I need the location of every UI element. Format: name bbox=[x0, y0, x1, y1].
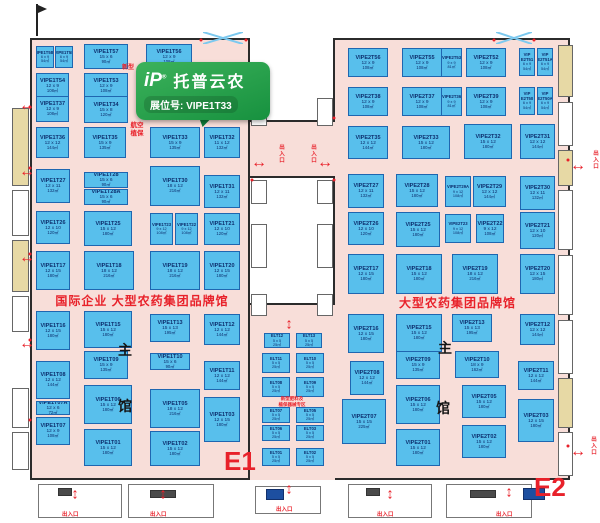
booth-VIPE2T53[interactable]: VIPE2T539 x 981㎡ bbox=[441, 48, 462, 77]
booth-VIPE2T08[interactable]: VIPE2T0812 x 12144㎡ bbox=[350, 361, 384, 395]
booth-VIPE1T19[interactable]: VIPE1T1918 x 12216㎡ bbox=[150, 251, 200, 290]
booth-area: 135㎡ bbox=[99, 146, 110, 151]
wall-marker-dot bbox=[245, 39, 248, 42]
booth-area: 90㎡ bbox=[102, 183, 111, 188]
facility-fixture bbox=[317, 180, 333, 204]
booth-area: 25㎡ bbox=[306, 365, 314, 369]
wall-marker-dot bbox=[29, 106, 32, 109]
main-hall-char: 馆 bbox=[118, 396, 132, 416]
booth-VIPE1T32[interactable]: VIPE1T3211 x 12132㎡ bbox=[204, 127, 240, 158]
booth-ELT12[interactable]: ELT125 x 525㎡ bbox=[264, 333, 290, 348]
booth-area: 54㎡ bbox=[523, 106, 531, 110]
booth-area: 120㎡ bbox=[216, 232, 227, 237]
booth-area: 180㎡ bbox=[102, 333, 113, 338]
booth-VIPE2T29A[interactable]: VIPE2T29A9 x 12108㎡ bbox=[445, 176, 471, 207]
booth-area: 180㎡ bbox=[216, 274, 227, 279]
booth-VIPE1T07[interactable]: VIPE1T0712 x 9108㎡ bbox=[36, 417, 70, 445]
booth-VIPE1T28A[interactable]: VIPE1T28A15 x 690㎡ bbox=[84, 189, 128, 205]
booth-area: 180㎡ bbox=[411, 194, 422, 199]
flag-icon bbox=[38, 5, 47, 13]
booth-area: 108㎡ bbox=[453, 194, 463, 198]
booth-area: 195㎡ bbox=[164, 331, 175, 336]
facility-fixture bbox=[558, 45, 573, 97]
booth-area: 180㎡ bbox=[532, 277, 543, 282]
booth-area: 120㎡ bbox=[532, 234, 543, 239]
facility-fixture bbox=[317, 98, 333, 126]
booth-ELT09[interactable]: ELT095 x 525㎡ bbox=[296, 377, 324, 397]
booth-VIPE1T30[interactable]: VIPE1T3018 x 12216㎡ bbox=[150, 166, 200, 206]
facility-fixture bbox=[366, 488, 380, 496]
booth-ELT02[interactable]: ELT025 x 525㎡ bbox=[296, 448, 324, 466]
booth-VIPE2T51[interactable]: VIP E2T516 x 954㎡ bbox=[519, 48, 535, 76]
booth-area: 25㎡ bbox=[306, 417, 314, 421]
booth-area: 144㎡ bbox=[47, 383, 58, 388]
entrance-arrow-icon: ↔ bbox=[317, 155, 333, 171]
booth-VIPE2T20[interactable]: VIPE2T2012 x 15180㎡ bbox=[520, 254, 555, 294]
booth-ELT13[interactable]: ELT135 x 525㎡ bbox=[296, 333, 322, 348]
booth-area: 108㎡ bbox=[416, 66, 427, 71]
booth-area: 120㎡ bbox=[47, 231, 58, 236]
booth-area: 180㎡ bbox=[102, 451, 113, 456]
booth-area: 90㎡ bbox=[166, 365, 175, 370]
booth-VIPE1T36[interactable]: VIPE1T3612 x 12144㎡ bbox=[36, 127, 69, 158]
booth-area: 90㎡ bbox=[102, 60, 111, 65]
booth-ELT05[interactable]: ELT055 x 525㎡ bbox=[296, 407, 324, 423]
wall-marker-dot bbox=[29, 339, 32, 342]
booth-VIPE2T21[interactable]: VIPE2T2112 x 10120㎡ bbox=[520, 212, 555, 249]
booth-area: 180㎡ bbox=[169, 452, 180, 457]
booth-area: 180㎡ bbox=[478, 445, 489, 450]
booth-area: 25㎡ bbox=[273, 343, 281, 347]
booth-ELT07[interactable]: ELT075 x 525㎡ bbox=[262, 407, 290, 423]
booth-area: 144㎡ bbox=[532, 145, 543, 150]
booth-area: 108㎡ bbox=[362, 66, 373, 71]
wall-marker-dot bbox=[567, 159, 570, 162]
facility-fixture bbox=[266, 489, 284, 500]
booth-area: 54㎡ bbox=[523, 67, 531, 71]
booth-VIPE2T56[interactable]: VIPE2T5612 x 9108㎡ bbox=[348, 48, 388, 77]
e2-section-title: 大型农药集团品牌馆 bbox=[350, 294, 565, 311]
booth-VIPE2T26[interactable]: VIPE2T2612 x 10120㎡ bbox=[348, 212, 384, 245]
exit-label: 出入口 bbox=[150, 510, 167, 518]
entrance-arrow-icon: ↔ bbox=[19, 250, 35, 266]
booth-VIPE2T29[interactable]: VIPE2T2912 x 12144㎡ bbox=[473, 176, 506, 207]
booth-area: 216㎡ bbox=[103, 274, 114, 279]
booth-area: 54㎡ bbox=[60, 59, 68, 63]
exit-label: 出入口 bbox=[589, 436, 597, 456]
booth-area: 25㎡ bbox=[305, 343, 313, 347]
booth-area: 180㎡ bbox=[478, 405, 489, 410]
booth-area: 180㎡ bbox=[420, 146, 431, 151]
booth-VIPE1T34[interactable]: VIPE1T3415 x 8120㎡ bbox=[84, 96, 128, 123]
wall-marker-dot bbox=[533, 39, 536, 42]
booth-VIPE2T15[interactable]: VIPE2T1515 x 12180㎡ bbox=[396, 314, 442, 352]
booth-area: 216㎡ bbox=[169, 274, 180, 279]
booth-area: 72㎡ bbox=[49, 411, 58, 415]
booth-area: 180㎡ bbox=[530, 424, 541, 429]
booth-area: 132㎡ bbox=[360, 194, 371, 199]
booth-VIPE2T19[interactable]: VIPE2T1918 x 12216㎡ bbox=[452, 254, 498, 294]
booth-number-label: 展位号: VIPE1T33 bbox=[144, 96, 238, 113]
booth-VIPE2T38[interactable]: VIPE2T3812 x 9108㎡ bbox=[348, 87, 388, 116]
corridor-zone-label: 新型肥料及 植保器械专区 bbox=[256, 396, 328, 407]
facility-fixture bbox=[558, 102, 573, 146]
booth-VIPE2T03[interactable]: VIPE2T0312 x 15180㎡ bbox=[518, 399, 554, 442]
booth-area: 144㎡ bbox=[216, 379, 227, 384]
booth-VIPE2T12[interactable]: VIPE2T1212 x 12144㎡ bbox=[520, 314, 555, 345]
booth-area: 132㎡ bbox=[216, 195, 227, 200]
exit-label: 出入口 bbox=[309, 144, 317, 164]
booth-name: VIP E2T50 bbox=[520, 92, 534, 101]
booth-area: 180㎡ bbox=[412, 451, 423, 456]
booth-area: 108㎡ bbox=[453, 231, 463, 235]
entrance-arrow-icon: ↕ bbox=[71, 487, 79, 502]
booth-area: 216㎡ bbox=[169, 412, 180, 417]
booth-area: 180㎡ bbox=[102, 408, 113, 413]
door-cross-icon bbox=[496, 32, 532, 44]
entrance-arrow-icon: ↔ bbox=[570, 158, 586, 174]
facility-fixture bbox=[12, 240, 29, 292]
booth-area: 25㎡ bbox=[306, 459, 314, 463]
booth-area: 144㎡ bbox=[530, 379, 541, 384]
booth-VIPE1T27[interactable]: VIPE1T2712 x 11132㎡ bbox=[36, 169, 70, 203]
booth-area: 135㎡ bbox=[412, 368, 423, 373]
booth-area: 180㎡ bbox=[413, 277, 424, 282]
booth-VIPE2T18[interactable]: VIPE2T1815 x 12180㎡ bbox=[396, 254, 442, 294]
booth-area: 108㎡ bbox=[181, 231, 191, 235]
booth-VIPE2T39[interactable]: VIPE2T3912 x 9108㎡ bbox=[466, 87, 506, 116]
booth-area: 216㎡ bbox=[169, 189, 180, 194]
booth-area: 25㎡ bbox=[306, 389, 314, 393]
booth-VIPE1T22[interactable]: VIPE1T229 x 12108㎡ bbox=[175, 213, 198, 245]
booth-VIPE1T16[interactable]: VIPE1T1612 x 15180㎡ bbox=[36, 311, 70, 350]
facility-fixture bbox=[317, 294, 333, 316]
booth-area: 216㎡ bbox=[469, 277, 480, 282]
booth-ELT11[interactable]: ELT115 x 525㎡ bbox=[262, 353, 290, 373]
booth-area: 81㎡ bbox=[447, 104, 455, 108]
booth-area: 108㎡ bbox=[47, 112, 58, 117]
booth-VIPE2T55[interactable]: VIPE2T5512 x 9108㎡ bbox=[402, 48, 442, 77]
booth-area: 135㎡ bbox=[169, 146, 180, 151]
facility-fixture bbox=[12, 190, 29, 236]
booth-ELT06[interactable]: ELT065 x 525㎡ bbox=[262, 425, 290, 441]
facility-fixture bbox=[558, 320, 573, 374]
booth-area: 180㎡ bbox=[360, 277, 371, 282]
facility-fixture bbox=[558, 190, 573, 250]
booth-area: 25㎡ bbox=[272, 365, 280, 369]
booth-area: 108㎡ bbox=[416, 105, 427, 110]
booth-area: 180㎡ bbox=[102, 232, 113, 237]
booth-area: 108㎡ bbox=[156, 231, 166, 235]
booth-ELT10[interactable]: ELT105 x 525㎡ bbox=[296, 353, 324, 373]
booth-area: 108㎡ bbox=[47, 89, 58, 94]
topu-logo-icon: iP® bbox=[144, 71, 166, 90]
booth-VIPE2T10[interactable]: VIPE2T1018 x 9162㎡ bbox=[455, 351, 499, 378]
main-hall-char: 馆 bbox=[436, 398, 450, 418]
wall-marker-dot bbox=[29, 167, 32, 170]
outbuilding bbox=[38, 484, 122, 518]
booth-VIPE2T09[interactable]: VIPE2T0915 x 9135㎡ bbox=[396, 351, 440, 379]
booth-VIPE2T32[interactable]: VIPE2T3215 x 12180㎡ bbox=[464, 124, 512, 159]
booth-VIPE2T17[interactable]: VIPE2T1712 x 15180㎡ bbox=[348, 254, 384, 294]
door-cross-icon bbox=[203, 32, 243, 44]
booth-area: 180㎡ bbox=[412, 233, 423, 238]
booth-VIPE1T02[interactable]: VIPE1T0215 x 12180㎡ bbox=[150, 431, 200, 466]
booth-VIPE2T16[interactable]: VIPE2T1612 x 15180㎡ bbox=[348, 314, 384, 353]
booth-area: 135㎡ bbox=[100, 368, 111, 373]
entrance-arrow-icon: ↕ bbox=[285, 482, 293, 497]
booth-VIPE1T17[interactable]: VIPE1T1712 x 15180㎡ bbox=[36, 251, 70, 290]
booth-area: 144㎡ bbox=[362, 146, 373, 151]
exit-label: 出入口 bbox=[62, 510, 79, 518]
booth-VIPE1T11[interactable]: VIPE1T1112 x 12144㎡ bbox=[204, 361, 240, 390]
main-hall-char: 主 bbox=[438, 338, 452, 358]
facility-fixture bbox=[12, 432, 29, 470]
booth-VIPE2T36[interactable]: VIPE2T369 x 981㎡ bbox=[441, 87, 462, 116]
wall-marker-dot bbox=[493, 39, 496, 42]
booth-VIPE2T30[interactable]: VIPE2T3012 x 11132㎡ bbox=[520, 176, 555, 210]
booth-VIPE1T03[interactable]: VIPE1T0312 x 15180㎡ bbox=[204, 397, 240, 442]
entrance-arrow-icon: ↔ bbox=[570, 444, 586, 460]
booth-VIPE1T01[interactable]: VIPE1T0115 x 12180㎡ bbox=[84, 429, 132, 466]
hall-label-e2: E2 bbox=[534, 472, 566, 503]
booth-area: 25㎡ bbox=[272, 459, 280, 463]
exit-label: 出入口 bbox=[276, 505, 293, 513]
exit-label: 出入口 bbox=[591, 150, 599, 170]
entrance-arrow-icon: ↕ bbox=[386, 487, 394, 502]
hall-label-e1: E1 bbox=[224, 446, 256, 477]
booth-VIPE2T11[interactable]: VIPE2T1112 x 12144㎡ bbox=[518, 361, 554, 390]
booth-VIPE1T28[interactable]: VIPE1T2815 x 690㎡ bbox=[84, 172, 128, 188]
booth-VIPE1T10[interactable]: VIPE1T1015 x 690㎡ bbox=[150, 353, 190, 370]
booth-area: 108㎡ bbox=[47, 434, 58, 439]
booth-area: 120㎡ bbox=[100, 113, 111, 118]
booth-area: 54㎡ bbox=[41, 59, 49, 63]
entrance-arrow-icon: ↔ bbox=[19, 164, 35, 180]
booth-VIPE1T20[interactable]: VIPE1T2012 x 15180㎡ bbox=[204, 251, 240, 290]
booth-VIPE1T37[interactable]: VIPE1T3712 x 9108㎡ bbox=[36, 96, 69, 122]
wall-marker-dot bbox=[200, 39, 203, 42]
facility-fixture bbox=[317, 224, 333, 268]
booth-area: 132㎡ bbox=[47, 189, 58, 194]
facility-fixture bbox=[58, 488, 72, 496]
booth-ELT03[interactable]: ELT035 x 525㎡ bbox=[296, 425, 324, 441]
booth-VIPE1T05[interactable]: VIPE1T0518 x 12216㎡ bbox=[150, 389, 200, 428]
booth-VIPE2T31[interactable]: VIPE2T3112 x 12144㎡ bbox=[520, 124, 555, 159]
wall-marker-dot bbox=[251, 179, 254, 182]
booth-VIPE1T33[interactable]: VIPE1T3315 x 9135㎡ bbox=[150, 127, 200, 158]
booth-area: 144㎡ bbox=[216, 333, 227, 338]
e1-section-title: 国际企业 大型农药集团品牌馆 bbox=[34, 292, 250, 309]
booth-VIPE1T26[interactable]: VIPE1T2612 x 10120㎡ bbox=[36, 211, 70, 244]
booth-VIPE2T50A[interactable]: VIP E2T50A6 x 954㎡ bbox=[537, 87, 553, 115]
wall-marker-dot bbox=[29, 253, 32, 256]
booth-area: 25㎡ bbox=[272, 417, 280, 421]
entrance-arrow-icon: ↔ bbox=[251, 155, 267, 171]
aviation-plant-protection-label: 航空 植保 bbox=[128, 122, 146, 138]
facility-fixture bbox=[12, 388, 29, 428]
booth-VIPE2T02[interactable]: VIPE2T0215 x 12180㎡ bbox=[462, 425, 506, 458]
booth-VIPE1T25[interactable]: VIPE1T2515 x 12180㎡ bbox=[84, 211, 132, 246]
booth-area: 144㎡ bbox=[47, 146, 58, 151]
main-hall-char: 主 bbox=[118, 340, 132, 360]
exit-label: 出入口 bbox=[277, 144, 285, 164]
new-type-label: 新型 bbox=[122, 65, 134, 73]
booth-area: 180㎡ bbox=[482, 145, 493, 150]
booth-VIPE2T07[interactable]: VIPE2T0715 x 15225㎡ bbox=[342, 399, 386, 444]
facility-fixture bbox=[558, 378, 573, 428]
booth-VIPE2T23[interactable]: VIPE2T239 x 12108㎡ bbox=[445, 214, 471, 243]
booth-area: 54㎡ bbox=[541, 67, 549, 71]
booth-VIPE2T33[interactable]: VIPE2T3315 x 12180㎡ bbox=[402, 126, 450, 159]
booth-area: 108㎡ bbox=[484, 232, 495, 237]
entrance-arrow-icon: ↕ bbox=[159, 487, 167, 502]
booth-area: 25㎡ bbox=[272, 389, 280, 393]
booth-area: 180㎡ bbox=[216, 423, 227, 428]
booth-VIPE1T21[interactable]: VIPE1T2112 x 10120㎡ bbox=[204, 213, 240, 245]
wall-marker-dot bbox=[29, 419, 32, 422]
entrance-arrow-icon: ↕ bbox=[505, 485, 513, 500]
booth-VIPE1T31[interactable]: VIPE1T3112 x 11132㎡ bbox=[204, 175, 240, 208]
booth-area: 144㎡ bbox=[361, 381, 372, 386]
booth-VIPE2T35[interactable]: VIPE2T3512 x 12144㎡ bbox=[348, 126, 388, 159]
expo-floor-plan: VIPE1T58A6 x 954㎡VIPE1T586 x 954㎡VIPE1T5… bbox=[0, 0, 600, 523]
entrance-arrow-icon: ↔ bbox=[19, 336, 35, 352]
booth-area: 225㎡ bbox=[358, 425, 369, 430]
booth-area: 144㎡ bbox=[484, 195, 495, 200]
wall-marker-dot bbox=[333, 179, 336, 182]
booth-VIPE1T35[interactable]: VIPE1T3515 x 9135㎡ bbox=[84, 127, 126, 158]
booth-area: 54㎡ bbox=[541, 106, 549, 110]
exhibitor-banner[interactable]: iP® 托普云农 展位号: VIPE1T33 bbox=[136, 62, 270, 120]
wall-marker-dot bbox=[567, 445, 570, 448]
booth-ELT01[interactable]: ELT015 x 525㎡ bbox=[262, 448, 290, 466]
booth-area: 180㎡ bbox=[360, 337, 371, 342]
facility-fixture bbox=[470, 490, 496, 498]
booth-VIPE1T08[interactable]: VIPE1T0812 x 12144㎡ bbox=[36, 361, 70, 399]
booth-area: 162㎡ bbox=[471, 368, 482, 373]
entrance-arrow-icon: ↕ bbox=[285, 317, 293, 332]
booth-VIPE2T28[interactable]: VIPE2T2815 x 12180㎡ bbox=[396, 174, 438, 207]
booth-VIPE1T58A[interactable]: VIPE1T58A6 x 954㎡ bbox=[36, 46, 54, 68]
facility-fixture bbox=[12, 296, 29, 332]
facility-fixture bbox=[251, 224, 267, 268]
booth-VIPE2T51A[interactable]: VIP E2T51A6 x 954㎡ bbox=[537, 48, 553, 76]
booth-area: 108㎡ bbox=[362, 105, 373, 110]
exit-label: 出入口 bbox=[377, 510, 394, 518]
booth-area: 90㎡ bbox=[102, 200, 111, 205]
booth-area: 180㎡ bbox=[47, 274, 58, 279]
facility-fixture bbox=[251, 294, 267, 316]
booth-area: 144㎡ bbox=[532, 333, 543, 338]
booth-area: 108㎡ bbox=[100, 89, 111, 94]
booth-name: VIP E2T50A bbox=[537, 92, 552, 101]
booth-area: 25㎡ bbox=[272, 435, 280, 439]
booth-VIPE2T52[interactable]: VIPE2T5212 x 9108㎡ bbox=[466, 48, 506, 77]
booth-name: VIP E2T51 bbox=[520, 53, 534, 62]
booth-area: 180㎡ bbox=[412, 408, 423, 413]
booth-VIPE2T05[interactable]: VIPE2T0515 x 12180㎡ bbox=[462, 385, 506, 418]
booth-area: 132㎡ bbox=[532, 196, 543, 201]
booth-VIPE2T25[interactable]: VIPE2T2515 x 12180㎡ bbox=[396, 212, 440, 247]
booth-area: 132㎡ bbox=[216, 146, 227, 151]
exit-label: 出入口 bbox=[496, 510, 513, 518]
booth-VIPE2T27[interactable]: VIPE2T2712 x 11132㎡ bbox=[348, 174, 384, 208]
booth-area: 180㎡ bbox=[47, 334, 58, 339]
booth-area: 120㎡ bbox=[360, 232, 371, 237]
booth-VIPE2T22[interactable]: VIPE2T229 x 12108㎡ bbox=[476, 214, 504, 243]
booth-VIPE2T50[interactable]: VIP E2T506 x 954㎡ bbox=[519, 87, 535, 115]
booth-VIPE2T13[interactable]: VIPE2T1315 x 13195㎡ bbox=[452, 314, 492, 342]
booth-name: VIP E2T51A bbox=[537, 53, 552, 62]
booth-VIPE1T23[interactable]: VIPE1T239 x 12108㎡ bbox=[150, 213, 173, 245]
booth-area: 108㎡ bbox=[480, 105, 491, 110]
entrance-arrow-icon: ↔ bbox=[19, 98, 35, 114]
booth-VIPE1T58[interactable]: VIPE1T586 x 954㎡ bbox=[55, 46, 73, 68]
wall-marker-dot bbox=[333, 117, 336, 120]
booth-VIPE2T37[interactable]: VIPE2T3712 x 9108㎡ bbox=[402, 87, 442, 116]
brand-name: 托普云农 bbox=[173, 68, 245, 92]
booth-VIPE1T18[interactable]: VIPE1T1818 x 12216㎡ bbox=[84, 251, 134, 290]
booth-area: 108㎡ bbox=[480, 66, 491, 71]
booth-area: 180㎡ bbox=[413, 336, 424, 341]
booth-VIPE2T06[interactable]: VIPE2T0615 x 12180㎡ bbox=[396, 385, 440, 424]
booth-ELT08[interactable]: ELT085 x 525㎡ bbox=[262, 377, 290, 397]
booth-VIPE1T07A[interactable]: VIPE1T07A12 x 672㎡ bbox=[36, 401, 70, 415]
booth-area: 81㎡ bbox=[447, 65, 455, 69]
booth-area: 195㎡ bbox=[466, 331, 477, 336]
facility-fixture bbox=[251, 180, 267, 204]
booth-VIPE1T12[interactable]: VIPE1T1212 x 12144㎡ bbox=[204, 314, 240, 345]
booth-area: 25㎡ bbox=[306, 435, 314, 439]
booth-VIPE2T01[interactable]: VIPE2T0115 x 12180㎡ bbox=[396, 429, 440, 466]
booth-VIPE1T13[interactable]: VIPE1T1315 x 13195㎡ bbox=[150, 314, 190, 342]
